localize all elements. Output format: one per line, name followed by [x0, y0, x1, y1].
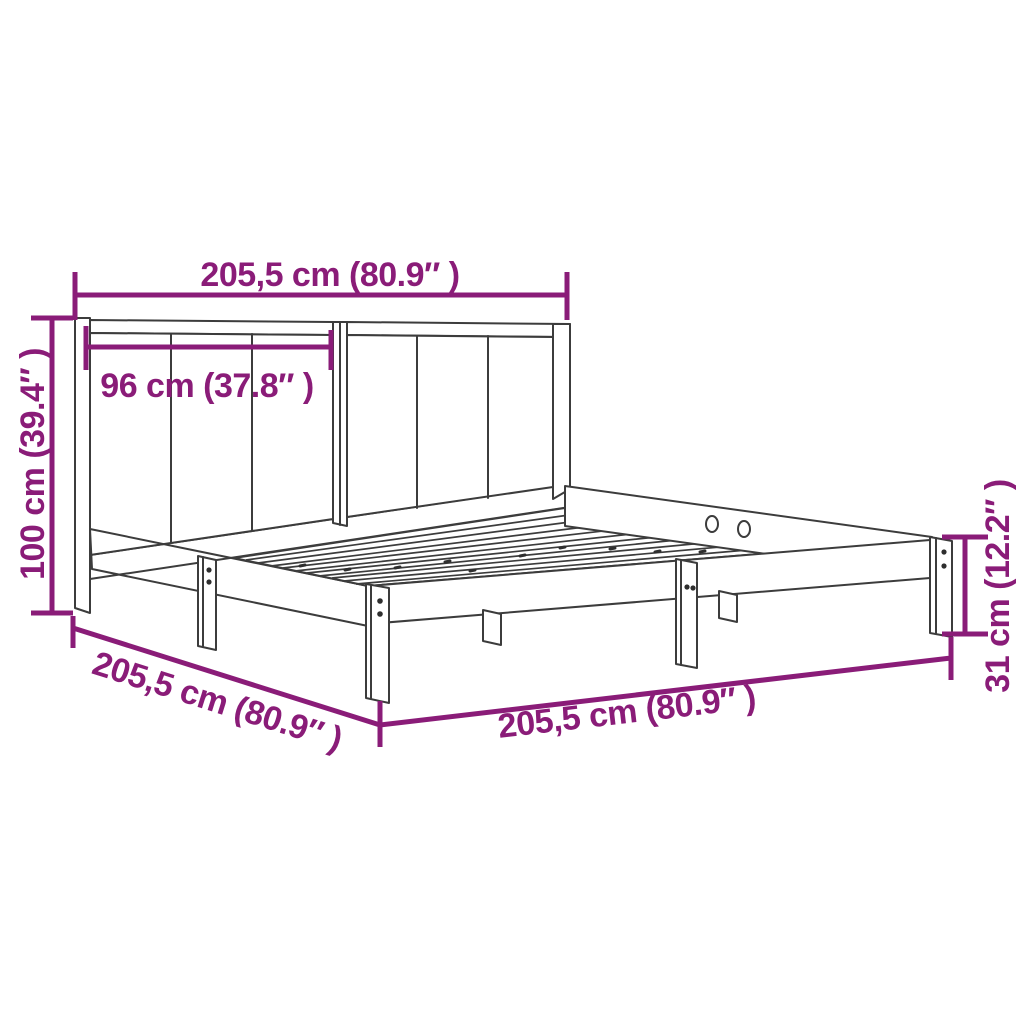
rear-peg-2 [719, 591, 737, 622]
dimension-label-overall-width-bottom: 205,5 cm (80.9″ ) [496, 678, 758, 746]
leg-front-right [930, 537, 952, 637]
dimension-label-headboard-height: 100 cm (39.4″ ) [14, 348, 52, 580]
headboard-right-post [553, 324, 570, 499]
leg-middle-front [676, 559, 697, 668]
rear-peg-1 [483, 610, 501, 645]
dimension-label-overall-width-top: 205,5 cm (80.9″ ) [200, 256, 459, 294]
bed-frame-dimension-diagram: 205,5 cm (80.9″ ) 96 cm (37.8″ ) 100 cm … [0, 0, 1024, 1024]
leg-left-side [198, 556, 216, 650]
dimension-overall-width-bottom: 205,5 cm (80.9″ ) [380, 637, 951, 746]
headboard-right-panels [347, 335, 553, 517]
dimension-label-headboard-panel-width: 96 cm (37.8″ ) [100, 367, 313, 405]
dimension-side-depth: 205,5 cm (80.9″ ) [73, 616, 380, 759]
leg-front-left [366, 584, 389, 703]
dimension-overall-width-top: 205,5 cm (80.9″ ) [75, 256, 567, 320]
product-image: 205,5 cm (80.9″ ) 96 cm (37.8″ ) 100 cm … [0, 0, 1024, 1024]
dimension-headboard-height: 100 cm (39.4″ ) [14, 318, 73, 613]
dimension-label-base-height: 31 cm (12.2″ ) [979, 479, 1017, 692]
